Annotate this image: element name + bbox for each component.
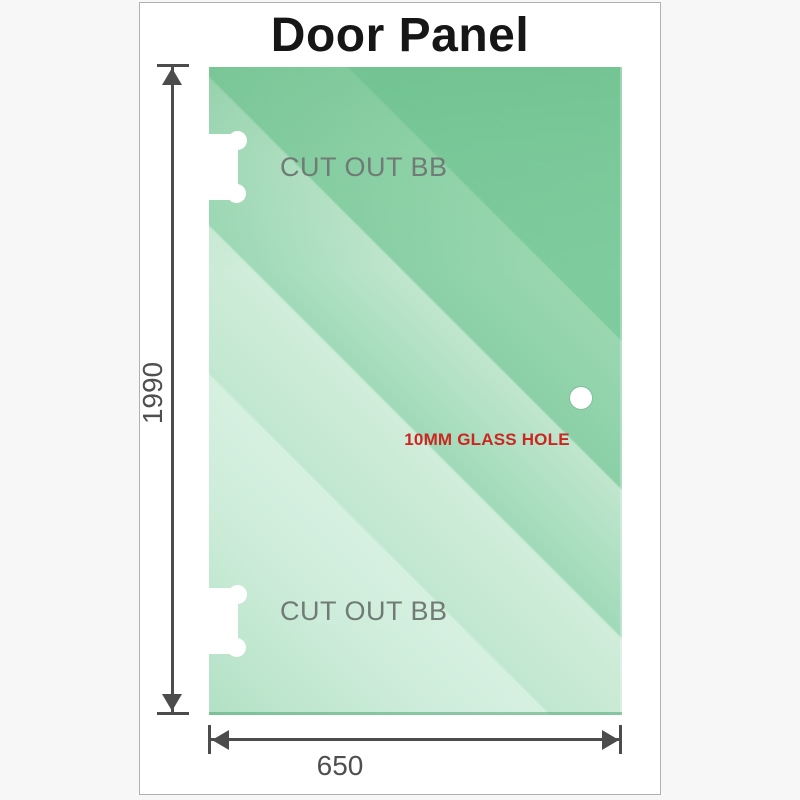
height-dimension-tick-bottom — [157, 712, 189, 715]
cutout-corner-hole-icon — [228, 585, 247, 604]
width-dimension-tick-left — [208, 725, 211, 754]
door-panel-diagram: Door Panel CUT OUT BB CUT OUT BB 10MM GL… — [0, 0, 800, 800]
width-dimension-value: 650 — [280, 750, 400, 782]
arrow-left-icon — [212, 730, 229, 750]
cutout-corner-hole-icon — [227, 184, 246, 203]
cutout-corner-hole-icon — [227, 638, 246, 657]
cutout-bottom-label: CUT OUT BB — [280, 596, 448, 627]
arrow-up-icon — [162, 68, 182, 85]
glass-hole-icon — [570, 387, 592, 409]
height-dimension-tick-top — [157, 64, 189, 67]
page-title: Door Panel — [139, 8, 661, 63]
height-dimension-line — [171, 67, 174, 714]
width-dimension-line — [210, 738, 621, 741]
arrow-down-icon — [162, 694, 182, 711]
cutout-corner-hole-icon — [228, 131, 247, 150]
cutout-top-label: CUT OUT BB — [280, 152, 448, 183]
arrow-right-icon — [602, 730, 619, 750]
glass-hole-label: 10MM GLASS HOLE — [400, 430, 574, 450]
height-dimension-value: 1990 — [137, 347, 167, 439]
width-dimension-tick-right — [619, 725, 622, 754]
